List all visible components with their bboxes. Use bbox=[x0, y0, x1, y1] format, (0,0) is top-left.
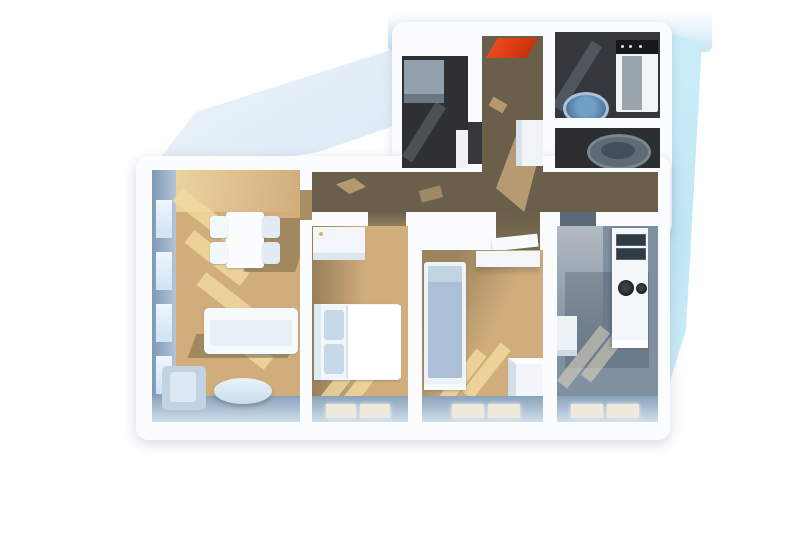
bathroom bbox=[555, 32, 660, 118]
machine-knob bbox=[629, 45, 632, 48]
sunlight-patch bbox=[489, 97, 508, 114]
sunlight-patch bbox=[419, 185, 443, 202]
window-light bbox=[607, 404, 639, 418]
washing-machine bbox=[616, 40, 658, 112]
bed-duvet bbox=[346, 305, 401, 379]
doorway-living-to-hall bbox=[300, 190, 312, 220]
window bbox=[156, 252, 172, 290]
bed-headboard bbox=[314, 304, 321, 380]
sink-basin bbox=[616, 234, 646, 246]
sofa-seat bbox=[210, 320, 292, 346]
red-doormat bbox=[486, 38, 538, 58]
cooktop-burner bbox=[636, 283, 647, 294]
sink-basin bbox=[616, 248, 646, 260]
hallway-entrance bbox=[482, 36, 543, 212]
single-bed bbox=[424, 262, 466, 390]
wc bbox=[555, 128, 660, 168]
dining-chair bbox=[210, 216, 228, 238]
bed-mattress bbox=[428, 266, 462, 378]
kitchen bbox=[557, 226, 658, 422]
double-bed bbox=[314, 304, 400, 380]
window-light bbox=[326, 404, 356, 418]
window-light bbox=[452, 404, 484, 418]
light-streak bbox=[402, 102, 446, 163]
dining-chair bbox=[262, 242, 280, 264]
wardrobe bbox=[313, 227, 365, 260]
floorplan-3d-render bbox=[0, 0, 800, 534]
coffee-table bbox=[214, 378, 272, 404]
hall-cupboard bbox=[516, 120, 543, 166]
machine-knob bbox=[639, 45, 642, 48]
shower-room bbox=[402, 56, 468, 168]
doorway-shower-room bbox=[468, 122, 482, 164]
bedroom-2 bbox=[422, 250, 543, 422]
window-light bbox=[571, 404, 603, 418]
cooktop-burner bbox=[618, 280, 634, 296]
dining-chair bbox=[262, 216, 280, 238]
toilet-bowl bbox=[601, 142, 635, 159]
sunlight-patch bbox=[336, 178, 366, 194]
shower-tray bbox=[404, 60, 444, 103]
armchair-seat bbox=[170, 372, 196, 402]
sofa bbox=[204, 308, 298, 354]
machine-knob bbox=[621, 45, 624, 48]
toilet bbox=[587, 134, 651, 168]
washbasin bbox=[563, 92, 609, 118]
wall-pillar bbox=[456, 130, 468, 168]
bed-pillow bbox=[324, 310, 344, 340]
wall-shelf bbox=[476, 251, 540, 267]
kitchen-counter bbox=[612, 228, 648, 348]
doorway-bedroom1 bbox=[368, 212, 406, 226]
bed-pillow bbox=[324, 344, 344, 374]
window-light bbox=[360, 404, 390, 418]
window bbox=[156, 304, 172, 342]
bed-footboard bbox=[424, 384, 466, 390]
bedroom-1 bbox=[312, 226, 408, 422]
wall-cabinet bbox=[557, 316, 577, 356]
wardrobe-knob bbox=[319, 232, 323, 236]
doorway-kitchen bbox=[560, 212, 596, 226]
armchair bbox=[162, 366, 206, 410]
dining-table bbox=[226, 212, 264, 268]
dining-chair bbox=[210, 242, 228, 264]
window-light bbox=[488, 404, 520, 418]
machine-shadow bbox=[622, 56, 642, 110]
window bbox=[156, 200, 172, 238]
living-room bbox=[152, 170, 300, 422]
bed-pillow bbox=[428, 266, 462, 282]
counter-edge bbox=[612, 340, 648, 348]
